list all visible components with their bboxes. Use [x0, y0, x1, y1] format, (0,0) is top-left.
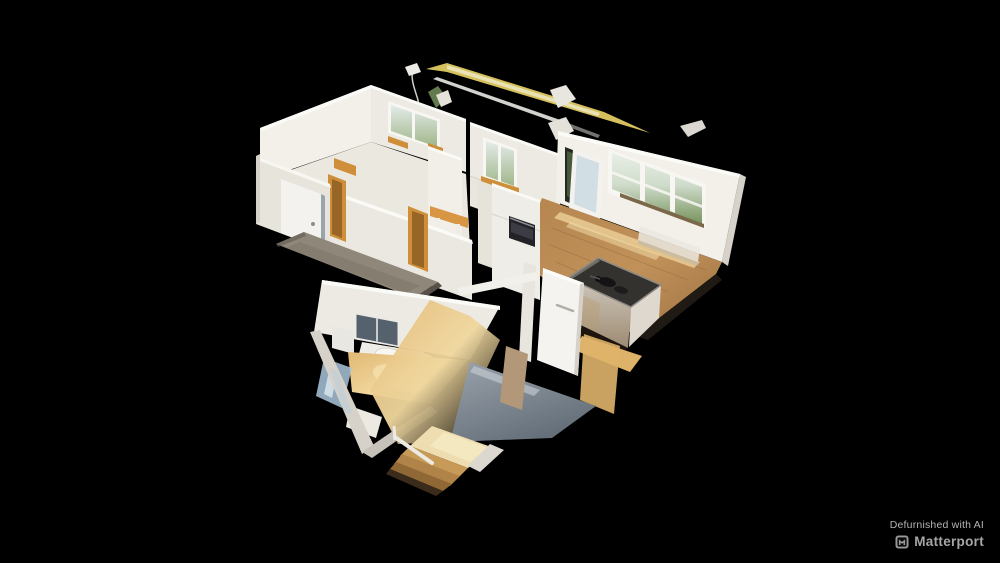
front-door-handle [311, 222, 315, 226]
kitchen-wall-sliver [478, 180, 492, 268]
balcony-door-glass [574, 155, 599, 213]
branding: Defurnished with AI Matterport [890, 519, 984, 549]
matterport-viewer: Defurnished with AI Matterport [0, 0, 1000, 563]
mirror-divider [376, 318, 378, 342]
matterport-wordmark: Matterport [914, 534, 984, 549]
stair-railing-post [394, 426, 395, 440]
window-2-mullion [498, 145, 501, 182]
window-1-mullion [412, 112, 415, 140]
entry-wall-cut-edge [256, 154, 260, 224]
dollhouse-3d-view[interactable] [0, 0, 1000, 563]
matterport-logo-icon [895, 535, 909, 549]
wood-bench-leg-2 [456, 224, 460, 233]
defurnished-caption: Defurnished with AI [890, 519, 984, 531]
wood-bench-leg-1 [436, 218, 440, 227]
door-frame-1-inner [332, 179, 342, 238]
door-frame-2-inner [412, 211, 424, 268]
wood-strip-right-of-door [580, 334, 620, 414]
